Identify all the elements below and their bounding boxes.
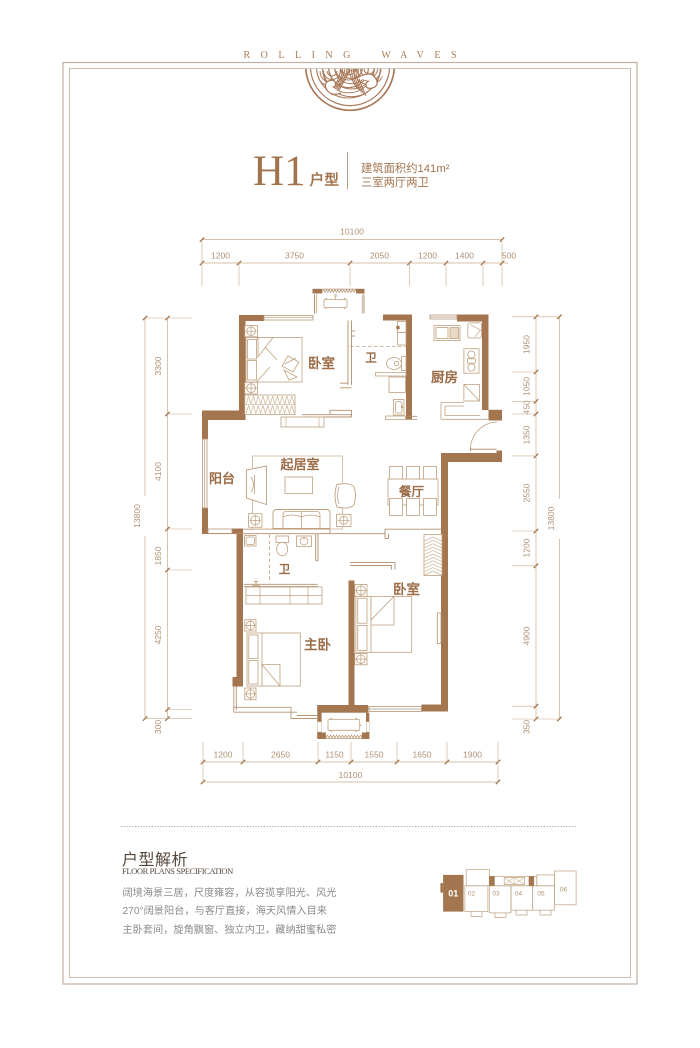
svg-text:2650: 2650 [271,750,290,760]
svg-text:2550: 2550 [522,483,532,502]
svg-text:1950: 1950 [522,335,532,354]
svg-text:主卧: 主卧 [304,637,331,653]
svg-text:卧室: 卧室 [308,355,335,371]
svg-text:06: 06 [560,887,568,894]
svg-text:1200: 1200 [214,750,233,760]
svg-text:13800: 13800 [546,506,556,530]
svg-text:1900: 1900 [463,750,482,760]
svg-text:1050: 1050 [522,377,532,396]
svg-text:4250: 4250 [153,625,163,644]
svg-text:10100: 10100 [340,227,364,237]
svg-text:阳台: 阳台 [209,471,235,486]
svg-text:1400: 1400 [455,251,474,261]
svg-text:厨房: 厨房 [431,369,458,385]
svg-text:1350: 1350 [522,425,532,444]
svg-text:1550: 1550 [365,750,384,760]
svg-text:04: 04 [515,891,523,898]
svg-text:4100: 4100 [153,462,163,481]
svg-text:500: 500 [502,251,516,261]
svg-text:1200: 1200 [211,251,230,261]
svg-text:03: 03 [492,891,500,898]
svg-text:3300: 3300 [153,356,163,375]
svg-text:02: 02 [468,891,476,898]
svg-text:1850: 1850 [153,546,163,565]
svg-text:1150: 1150 [325,750,344,760]
svg-text:4900: 4900 [522,626,532,645]
svg-text:起居室: 起居室 [279,457,319,472]
svg-text:卫: 卫 [365,352,377,365]
svg-text:餐厅: 餐厅 [398,484,425,499]
svg-text:卫: 卫 [279,563,291,576]
svg-text:1200: 1200 [418,251,437,261]
svg-text:10100: 10100 [339,770,363,780]
svg-text:1200: 1200 [522,538,532,557]
svg-text:450: 450 [522,400,532,414]
svg-text:300: 300 [153,720,163,734]
svg-text:3750: 3750 [285,251,304,261]
svg-text:1650: 1650 [413,750,432,760]
svg-text:350: 350 [522,720,532,734]
svg-text:05: 05 [537,891,545,898]
svg-text:2050: 2050 [370,251,389,261]
svg-text:卧室: 卧室 [393,581,420,597]
svg-text:01: 01 [448,889,458,899]
svg-text:13800: 13800 [132,504,142,528]
